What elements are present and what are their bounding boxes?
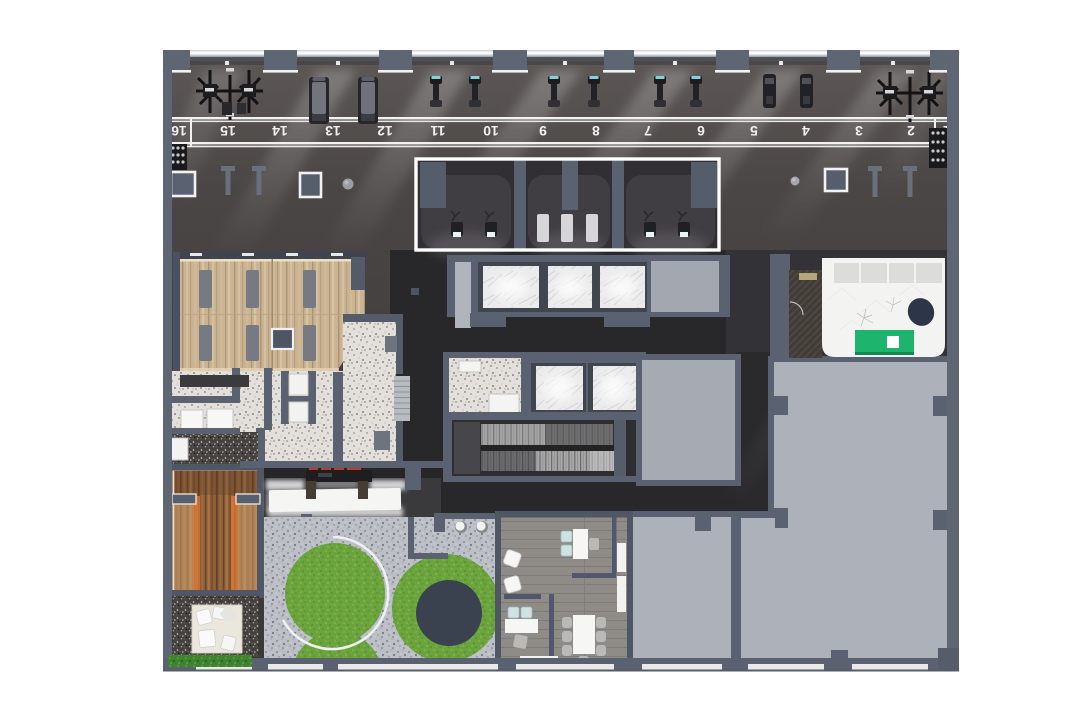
svg-text:9: 9 [539, 123, 547, 139]
svg-text:7: 7 [644, 123, 652, 139]
svg-text:10: 10 [483, 123, 499, 139]
svg-text:12: 12 [377, 123, 393, 139]
svg-text:2: 2 [907, 123, 915, 139]
svg-text:6: 6 [697, 123, 705, 139]
svg-text:16: 16 [171, 123, 187, 139]
svg-text:11: 11 [430, 123, 445, 139]
svg-text:15: 15 [220, 123, 236, 139]
svg-text:13: 13 [325, 123, 341, 139]
svg-text:4: 4 [802, 123, 810, 139]
svg-text:5: 5 [750, 123, 758, 139]
svg-text:14: 14 [272, 123, 288, 139]
svg-text:3: 3 [855, 123, 863, 139]
svg-text:8: 8 [592, 123, 600, 139]
